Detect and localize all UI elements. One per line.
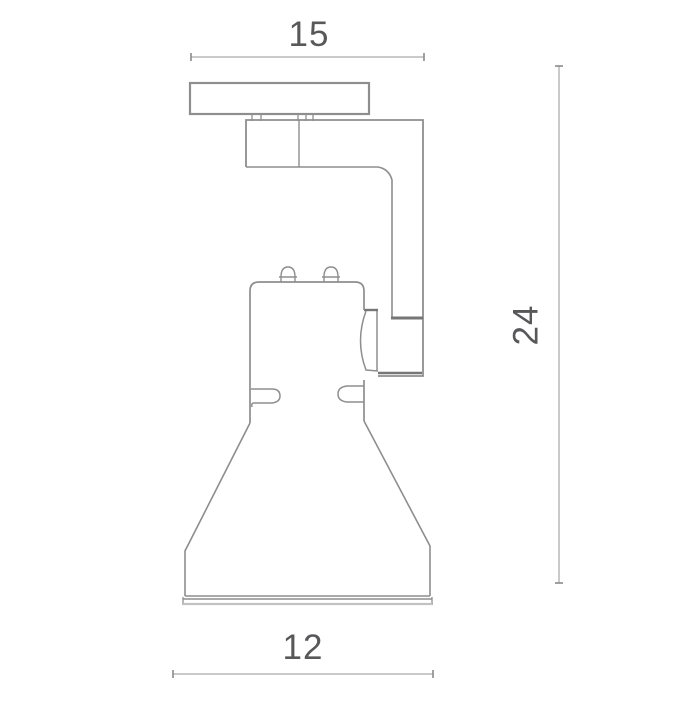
joint-knuckle-arc <box>361 311 379 371</box>
knob-left-dome <box>281 267 295 277</box>
arm-outer-outline <box>246 120 423 376</box>
dimension-bottom-label: 12 <box>283 628 324 667</box>
adjustment-knob-left <box>279 267 297 282</box>
dimension-top-label: 15 <box>289 15 330 54</box>
lamp-body <box>250 267 364 423</box>
shade-right-outline <box>364 421 430 596</box>
arm-inner-outline <box>246 167 392 317</box>
mounting-plate <box>190 83 369 114</box>
dimension-bottom-width: 12 <box>173 628 433 678</box>
dimension-height-label: 24 <box>507 305 546 346</box>
adjustment-knob-right <box>322 267 340 282</box>
lamp-shade <box>183 421 432 605</box>
drawing-canvas: 15 24 12 <box>0 0 700 701</box>
mounting-plate-outline <box>190 83 369 114</box>
clip-right <box>338 386 364 402</box>
knob-right-dome <box>324 267 338 277</box>
shade-left-outline <box>185 423 250 596</box>
dimension-height: 24 <box>507 66 564 583</box>
spotlight-technical-drawing: 15 24 12 <box>0 0 700 701</box>
dimension-top-width: 15 <box>191 15 424 61</box>
mounting-arm <box>246 120 423 376</box>
clip-left <box>251 389 280 407</box>
